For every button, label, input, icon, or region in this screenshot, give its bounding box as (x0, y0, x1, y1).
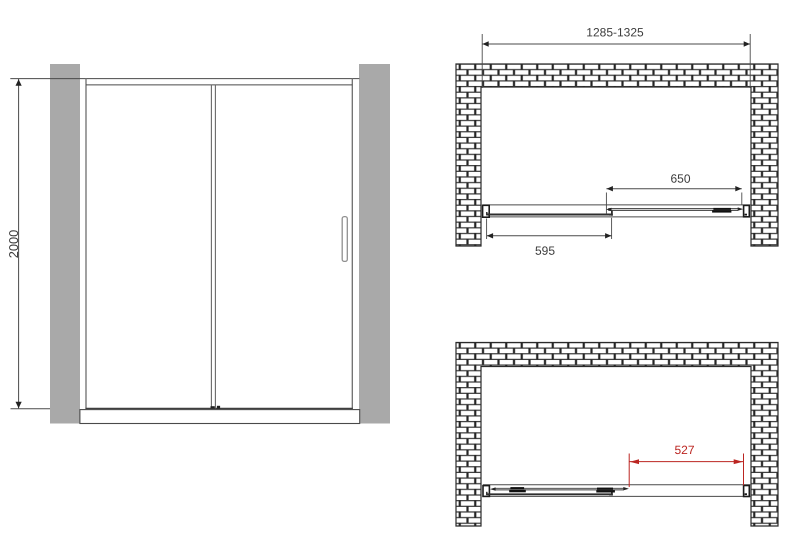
svg-text:2000: 2000 (6, 230, 21, 258)
svg-text:1285-1325: 1285-1325 (586, 25, 644, 39)
svg-text:595: 595 (535, 244, 555, 258)
svg-text:527: 527 (674, 443, 694, 457)
svg-text:650: 650 (670, 172, 690, 186)
